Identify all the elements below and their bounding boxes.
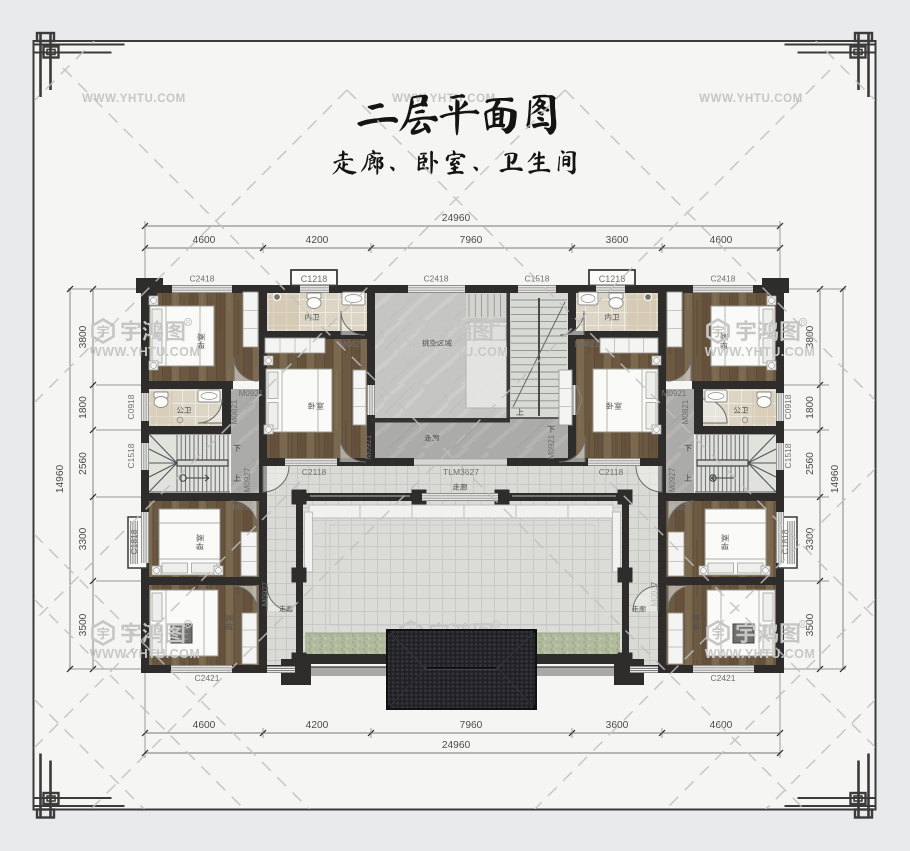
svg-text:M0821: M0821 [230,399,239,424]
svg-text:C2421: C2421 [194,673,219,683]
svg-text:WWW.YHTU.COM: WWW.YHTU.COM [398,345,508,359]
svg-text:3300: 3300 [805,527,816,550]
svg-text:C0918: C0918 [126,394,136,419]
svg-text:C2418: C2418 [189,274,214,284]
svg-text:C1818: C1818 [129,529,139,554]
svg-text:4200: 4200 [306,720,329,731]
svg-text:4200: 4200 [306,235,329,246]
svg-text:C2118: C2118 [599,467,624,477]
svg-text:WWW.YHTU.COM: WWW.YHTU.COM [90,647,200,661]
svg-text:C1518: C1518 [126,443,136,468]
svg-text:1800: 1800 [805,396,816,419]
svg-text:3500: 3500 [78,613,89,636]
svg-text:3800: 3800 [78,325,89,348]
svg-text:C1518: C1518 [524,274,549,284]
svg-text:4600: 4600 [193,720,216,731]
svg-text:3600: 3600 [606,235,629,246]
svg-text:C1818: C1818 [780,529,790,554]
svg-text:WWW.YHTU.COM: WWW.YHTU.COM [705,647,815,661]
svg-text:M0821: M0821 [681,399,690,424]
svg-text:1800: 1800 [78,396,89,419]
svg-text:24960: 24960 [442,740,471,751]
svg-text:3300: 3300 [78,527,89,550]
svg-text:R: R [801,622,806,628]
svg-text:C2418: C2418 [423,274,448,284]
svg-text:WWW.YHTU.COM: WWW.YHTU.COM [392,93,496,105]
svg-text:M0921: M0921 [239,389,264,398]
svg-text:R: R [494,622,499,628]
svg-text:M0821: M0821 [575,340,600,349]
svg-text:R: R [186,320,191,326]
svg-text:2560: 2560 [805,452,816,475]
svg-text:24960: 24960 [442,213,471,224]
svg-text:2560: 2560 [78,452,89,475]
svg-text:C1218: C1218 [599,274,626,284]
svg-text:14960: 14960 [55,465,66,494]
svg-text:R: R [801,320,806,326]
svg-text:C0918: C0918 [783,394,793,419]
svg-text:M0921: M0921 [547,434,556,459]
svg-text:M0921: M0921 [364,434,373,459]
svg-text:M0927: M0927 [668,467,677,492]
svg-text:4600: 4600 [710,235,733,246]
svg-text:C1218: C1218 [301,274,328,284]
svg-text:C2418: C2418 [710,274,735,284]
svg-text:M0921: M0921 [662,389,687,398]
svg-text:7960: 7960 [460,235,483,246]
svg-text:7960: 7960 [460,720,483,731]
svg-text:WWW.YHTU.COM: WWW.YHTU.COM [90,345,200,359]
svg-text:C2421: C2421 [710,673,735,683]
svg-text:4600: 4600 [193,235,216,246]
svg-text:TLM3627: TLM3627 [443,467,479,477]
svg-text:R: R [186,622,191,628]
svg-text:3600: 3600 [606,720,629,731]
svg-text:C1518: C1518 [783,443,793,468]
svg-text:M0927: M0927 [243,467,252,492]
svg-text:14960: 14960 [830,465,841,494]
svg-text:WWW.YHTU.COM: WWW.YHTU.COM [705,345,815,359]
svg-text:WWW.YHTU.COM: WWW.YHTU.COM [699,93,803,105]
svg-text:C2118: C2118 [302,467,327,477]
svg-text:R: R [494,320,499,326]
